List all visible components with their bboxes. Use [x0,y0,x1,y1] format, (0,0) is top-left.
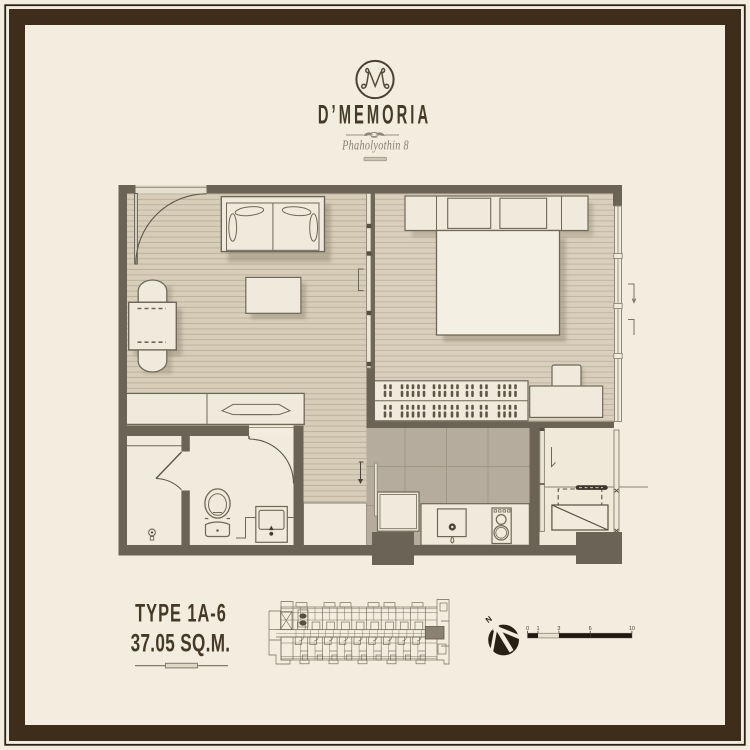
svg-text:Phaholyothin 8: Phaholyothin 8 [341,137,409,153]
svg-text:6: 6 [589,626,592,632]
svg-text:TYPE 1A-6: TYPE 1A-6 [135,600,227,627]
svg-text:37.05 SQ.M.: 37.05 SQ.M. [131,629,231,657]
svg-text:D’MEMORIA: D’MEMORIA [318,100,431,130]
svg-text:1: 1 [536,626,539,632]
svg-text:3: 3 [557,626,560,632]
svg-text:10: 10 [629,626,635,632]
svg-text:0: 0 [526,626,529,632]
